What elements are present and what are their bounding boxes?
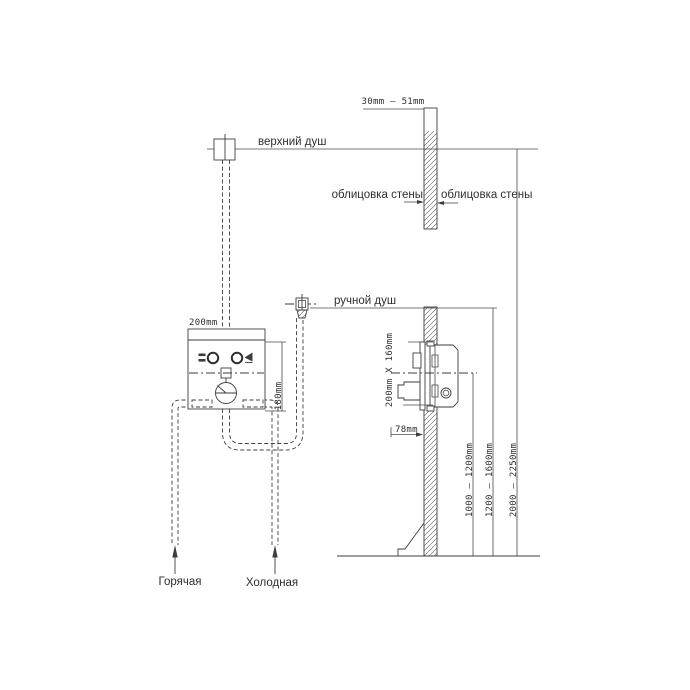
recess-depth-label: 78mm: [395, 425, 418, 435]
top-shower-assembly: верхний душ: [207, 134, 538, 160]
spindle-outer: [441, 388, 451, 398]
hot-pipe-inner: [178, 407, 192, 545]
knob-side-profile: [413, 353, 421, 368]
wall-hatch-top: [424, 131, 437, 229]
installation-diagram: 30mm – 51mm верхний душ 200mm: [0, 0, 690, 690]
cladding-label-left: облицовка стены: [332, 189, 423, 201]
floor: [337, 523, 540, 556]
mixer-side-view: 200mm X 160mm 78mm: [385, 333, 458, 437]
top-shower-outlet-box: [214, 139, 235, 160]
hand-shower-assembly: ручной душ: [285, 294, 497, 318]
handle-side-profile: [398, 382, 420, 400]
wall-section: 30mm – 51mm: [362, 97, 437, 556]
mounting-tab-bottom: [427, 406, 434, 411]
hand-shower-label: ручной душ: [334, 295, 396, 307]
cladding-arrow-right: [437, 201, 444, 205]
wall-hatch-mid: [424, 307, 437, 345]
hot-supply-label: Горячая: [159, 576, 202, 588]
top-shower-height-range-label: 2000 – 2250mm: [509, 443, 519, 517]
recess-opening-label: 200mm X 160mm: [385, 333, 395, 407]
shower-tray-profile: [398, 523, 424, 556]
faceplate: [420, 342, 425, 410]
hot-bars-icon: [199, 359, 206, 362]
hot-pipe-outer: [172, 400, 192, 545]
wall-hatch-bottom: [424, 411, 437, 556]
cold-pipe-inner: [263, 407, 272, 545]
mixer-height-range-label: 1000 – 1200mm: [465, 443, 475, 517]
mixer-height-label: 180mm: [274, 382, 284, 411]
hot-arrow-icon: [172, 545, 177, 558]
hose-nut: [297, 310, 307, 318]
cladding-gap-label: 30mm – 51mm: [362, 97, 425, 107]
cladding-label-right: облицовка стены: [441, 189, 532, 201]
mixer-front-view: 200mm 180mm: [188, 318, 286, 411]
cold-pipe-outer: [263, 400, 278, 545]
mixer-width-label: 200mm: [189, 318, 218, 328]
diagram-svg: 30mm – 51mm верхний душ 200mm: [0, 0, 690, 690]
supply-labels: Горячая Холодная: [159, 545, 299, 589]
height-dimensions: 1000 – 1200mm 1200 – 1600mm 2000 – 2250m…: [465, 149, 519, 556]
cold-supply-label: Холодная: [246, 577, 298, 589]
cold-arrow-icon: [272, 545, 277, 558]
hand-shower-height-range-label: 1200 – 1600mm: [485, 443, 495, 517]
top-shower-label: верхний душ: [258, 136, 326, 148]
hot-bars-icon: [199, 354, 206, 357]
